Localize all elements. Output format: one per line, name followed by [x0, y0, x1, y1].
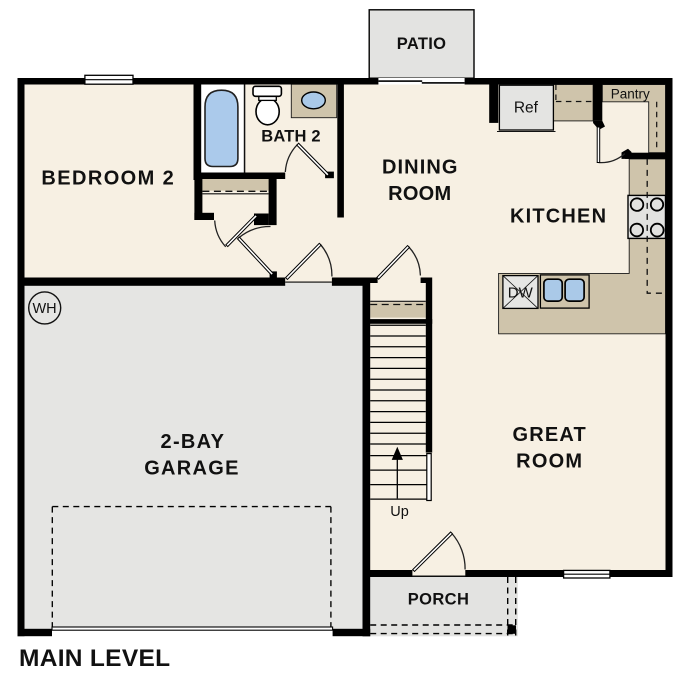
svg-text:MAIN LEVEL: MAIN LEVEL [19, 645, 170, 672]
svg-text:Ref: Ref [514, 100, 539, 117]
svg-text:PORCH: PORCH [408, 590, 470, 608]
svg-text:BEDROOM 2: BEDROOM 2 [41, 167, 175, 189]
svg-text:2-BAY: 2-BAY [161, 431, 226, 453]
svg-text:KITCHEN: KITCHEN [510, 206, 607, 228]
svg-text:GARAGE: GARAGE [144, 458, 240, 480]
svg-text:PATIO: PATIO [397, 35, 446, 53]
svg-text:GREAT: GREAT [512, 424, 587, 446]
svg-text:BATH 2: BATH 2 [261, 127, 321, 145]
svg-text:DW: DW [508, 285, 534, 302]
svg-text:ROOM: ROOM [516, 450, 583, 472]
svg-text:ROOM: ROOM [388, 183, 451, 205]
svg-text:DINING: DINING [382, 157, 459, 179]
svg-text:WH: WH [33, 301, 57, 317]
svg-text:Pantry: Pantry [611, 87, 650, 102]
svg-text:Up: Up [390, 504, 409, 520]
